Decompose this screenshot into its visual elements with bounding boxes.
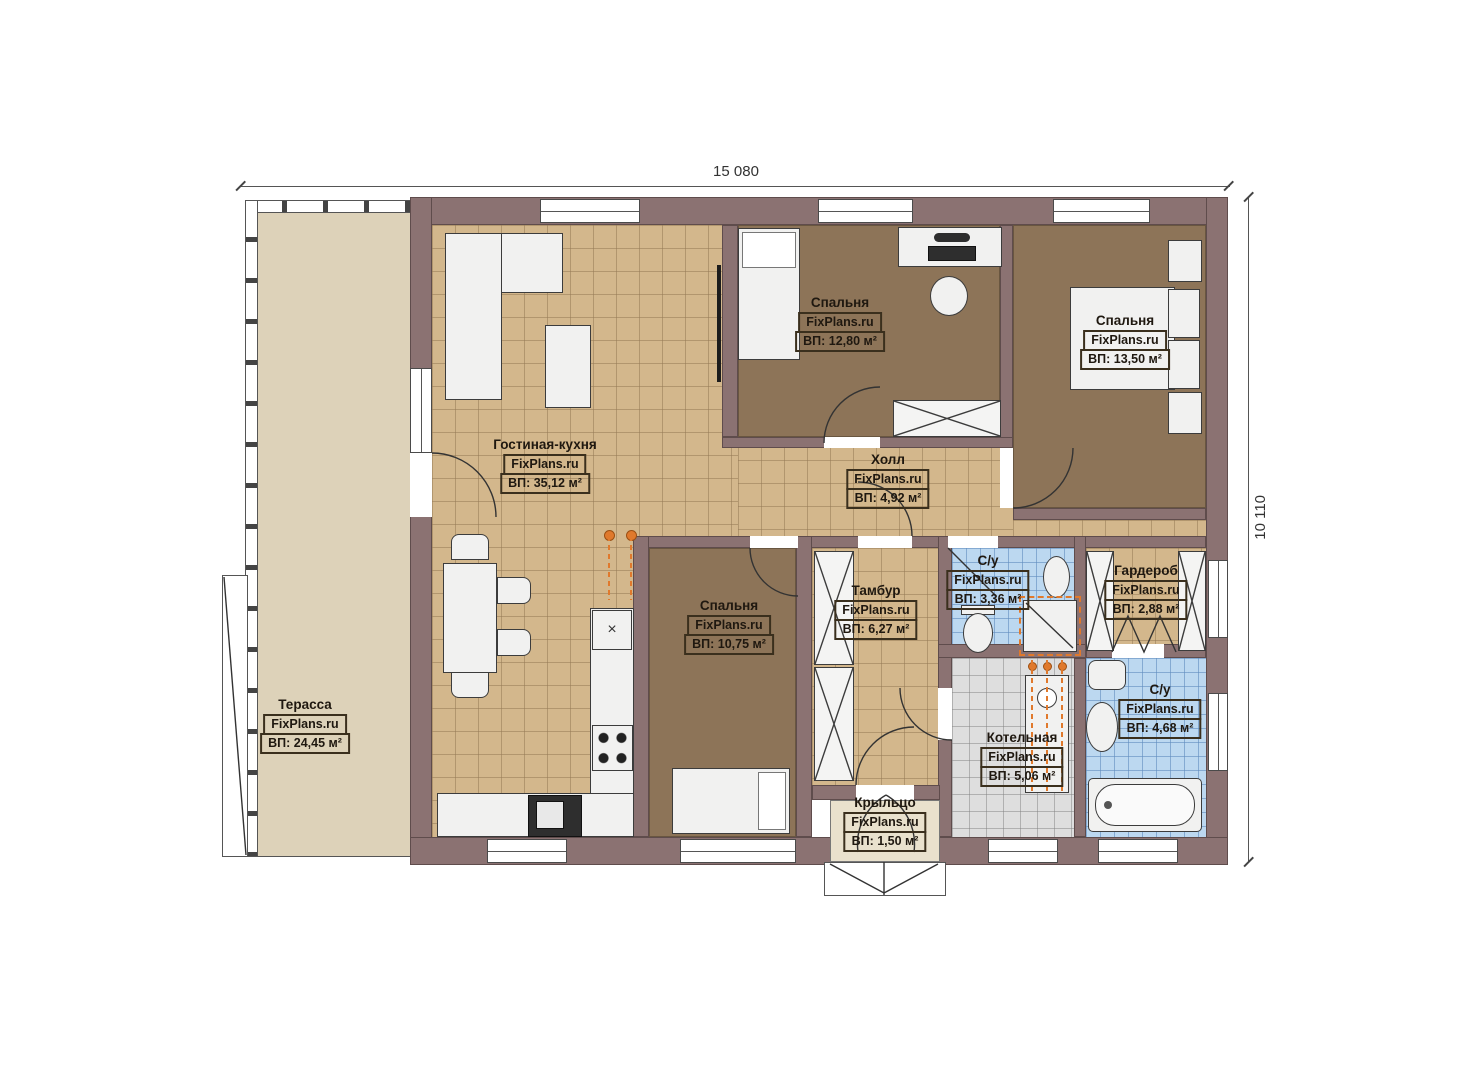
- door-opening-bathroom2: [1112, 644, 1164, 658]
- room-label-porch: Крыльцо FixPlans.ru ВП: 1,50 м²: [843, 795, 926, 852]
- room-name: С/у: [1118, 682, 1201, 697]
- room-name: Гардероб: [1104, 563, 1187, 578]
- room-watermark: FixPlans.ru: [846, 469, 929, 490]
- room-label-terrace: Терасса FixPlans.ru ВП: 24,45 м²: [260, 697, 350, 754]
- room-label-bedroom-2: Спальня FixPlans.ru ВП: 13,50 м²: [1080, 313, 1170, 370]
- room-name: Холл: [846, 452, 929, 467]
- wall-bedroom3-left: [633, 536, 649, 837]
- wall-living-bedroom1: [722, 225, 738, 437]
- wardrobe-cabinet: [814, 667, 854, 781]
- door-opening-bedroom3: [750, 536, 798, 548]
- room-watermark: FixPlans.ru: [503, 454, 586, 475]
- room-label-bathroom-2: С/у FixPlans.ru ВП: 4,68 м²: [1118, 682, 1201, 739]
- room-area: ВП: 24,45 м²: [260, 733, 350, 754]
- dimension-width-label: 15 080: [690, 163, 782, 180]
- window-terrace-door-side: [410, 368, 432, 453]
- room-watermark: FixPlans.ru: [980, 747, 1063, 768]
- door-opening-bedroom2: [1000, 448, 1013, 508]
- door-opening-boiler: [938, 688, 952, 740]
- room-label-living-kitchen: Гостиная-кухня FixPlans.ru ВП: 35,12 м²: [493, 437, 596, 494]
- room-name: Гостиная-кухня: [493, 437, 596, 452]
- dining-chair: [451, 672, 489, 698]
- shower-cabin: [1023, 600, 1077, 652]
- dining-chair: [497, 629, 531, 656]
- room-watermark: FixPlans.ru: [946, 570, 1029, 591]
- window: [1208, 693, 1228, 771]
- room-watermark: FixPlans.ru: [1118, 699, 1201, 720]
- dining-chair: [451, 534, 489, 560]
- room-area: ВП: 4,92 м²: [847, 488, 930, 509]
- sofa-section-vertical: [445, 233, 502, 400]
- room-watermark: FixPlans.ru: [798, 312, 881, 333]
- bathtub-drain: [1104, 801, 1112, 809]
- washbasin: [1043, 556, 1070, 598]
- room-name: Терасса: [260, 697, 350, 712]
- wall-hall-south: [633, 536, 1206, 548]
- dishwasher: ×: [592, 610, 632, 650]
- room-label-bedroom-3: Спальня FixPlans.ru ВП: 10,75 м²: [684, 598, 774, 655]
- room-label-hall: Холл FixPlans.ru ВП: 4,92 м²: [846, 452, 929, 509]
- dimension-line-top: [240, 186, 1230, 187]
- window: [680, 839, 796, 863]
- room-watermark: FixPlans.ru: [1104, 580, 1187, 601]
- dishwasher-mark: ×: [607, 621, 616, 639]
- nightstand: [1168, 392, 1202, 434]
- room-watermark: FixPlans.ru: [263, 714, 346, 735]
- office-chair: [930, 276, 968, 316]
- dining-table: [443, 563, 497, 673]
- stove: [592, 725, 633, 771]
- radiator-valve: [1028, 662, 1037, 671]
- laptop: [928, 246, 976, 261]
- desk-lamp: [934, 233, 970, 242]
- room-area: ВП: 2,88 м²: [1105, 599, 1188, 620]
- floor-plan: ×: [0, 0, 1473, 1080]
- window: [988, 839, 1058, 863]
- room-label-tambour: Тамбур FixPlans.ru ВП: 6,27 м²: [834, 583, 917, 640]
- room-label-bathroom-1: С/у FixPlans.ru ВП: 3,36 м²: [946, 553, 1029, 610]
- bed-pillow: [742, 232, 796, 268]
- dimension-line-right: [1248, 197, 1249, 862]
- room-name: Спальня: [1080, 313, 1170, 328]
- room-name: Спальня: [795, 295, 885, 310]
- room-name: Котельная: [980, 730, 1063, 745]
- pendant-light: [626, 530, 637, 541]
- room-name: С/у: [946, 553, 1029, 568]
- wall-bedroom3-right: [796, 536, 812, 837]
- room-area: ВП: 1,50 м²: [844, 831, 927, 852]
- kitchen-sink-basin: [536, 801, 564, 829]
- room-label-bedroom-1: Спальня FixPlans.ru ВП: 12,80 м²: [795, 295, 885, 352]
- room-area: ВП: 4,68 м²: [1119, 718, 1202, 739]
- bed-pillow: [758, 772, 786, 830]
- room-label-boiler: Котельная FixPlans.ru ВП: 5,06 м²: [980, 730, 1063, 787]
- dimension-height-label: 10 110: [1252, 495, 1269, 540]
- room-watermark: FixPlans.ru: [834, 600, 917, 621]
- door-opening-tambour: [858, 536, 912, 548]
- window: [1098, 839, 1178, 863]
- door-opening-bathroom1: [948, 536, 998, 548]
- bed-pillow: [1168, 340, 1200, 389]
- window: [1208, 560, 1228, 638]
- room-area: ВП: 6,27 м²: [835, 619, 918, 640]
- wardrobe-cabinet: [893, 400, 1001, 437]
- washbasin: [1086, 702, 1118, 752]
- room-name: Крыльцо: [843, 795, 926, 810]
- room-name: Тамбур: [834, 583, 917, 598]
- hall-corridor-strip: [1013, 520, 1206, 536]
- room-area: ВП: 3,36 м²: [947, 589, 1030, 610]
- radiator-valve: [1043, 662, 1052, 671]
- toilet: [963, 613, 993, 653]
- dining-chair: [497, 577, 531, 604]
- window: [1053, 199, 1150, 223]
- radiator-valve: [1058, 662, 1067, 671]
- nightstand: [1168, 240, 1202, 282]
- room-area: ВП: 5,06 м²: [981, 766, 1064, 787]
- room-name: Спальня: [684, 598, 774, 613]
- room-watermark: FixPlans.ru: [687, 615, 770, 636]
- pendant-light: [604, 530, 615, 541]
- coffee-table: [545, 325, 591, 408]
- door-opening-bedroom1: [824, 437, 880, 448]
- room-area: ВП: 35,12 м²: [500, 473, 590, 494]
- terrace-railing-top: [245, 200, 415, 213]
- window: [487, 839, 567, 863]
- terrace-stair: [222, 575, 248, 857]
- room-area: ВП: 12,80 м²: [795, 331, 885, 352]
- porch-steps: [824, 862, 946, 896]
- room-label-wardrobe: Гардероб FixPlans.ru ВП: 2,88 м²: [1104, 563, 1187, 620]
- wall-bedroom2-bottom: [1013, 508, 1206, 520]
- door-opening-terrace: [410, 453, 432, 517]
- room-floor-terrace: [258, 213, 410, 856]
- boiler-gauge: [1037, 688, 1057, 708]
- window: [818, 199, 913, 223]
- room-watermark: FixPlans.ru: [1083, 330, 1166, 351]
- window: [540, 199, 640, 223]
- room-area: ВП: 13,50 м²: [1080, 349, 1170, 370]
- wall-exterior-left: [410, 197, 432, 865]
- wall-boiler-bath2: [1074, 658, 1086, 837]
- room-area: ВП: 10,75 м²: [684, 634, 774, 655]
- bed-pillow: [1168, 289, 1200, 338]
- room-watermark: FixPlans.ru: [843, 812, 926, 833]
